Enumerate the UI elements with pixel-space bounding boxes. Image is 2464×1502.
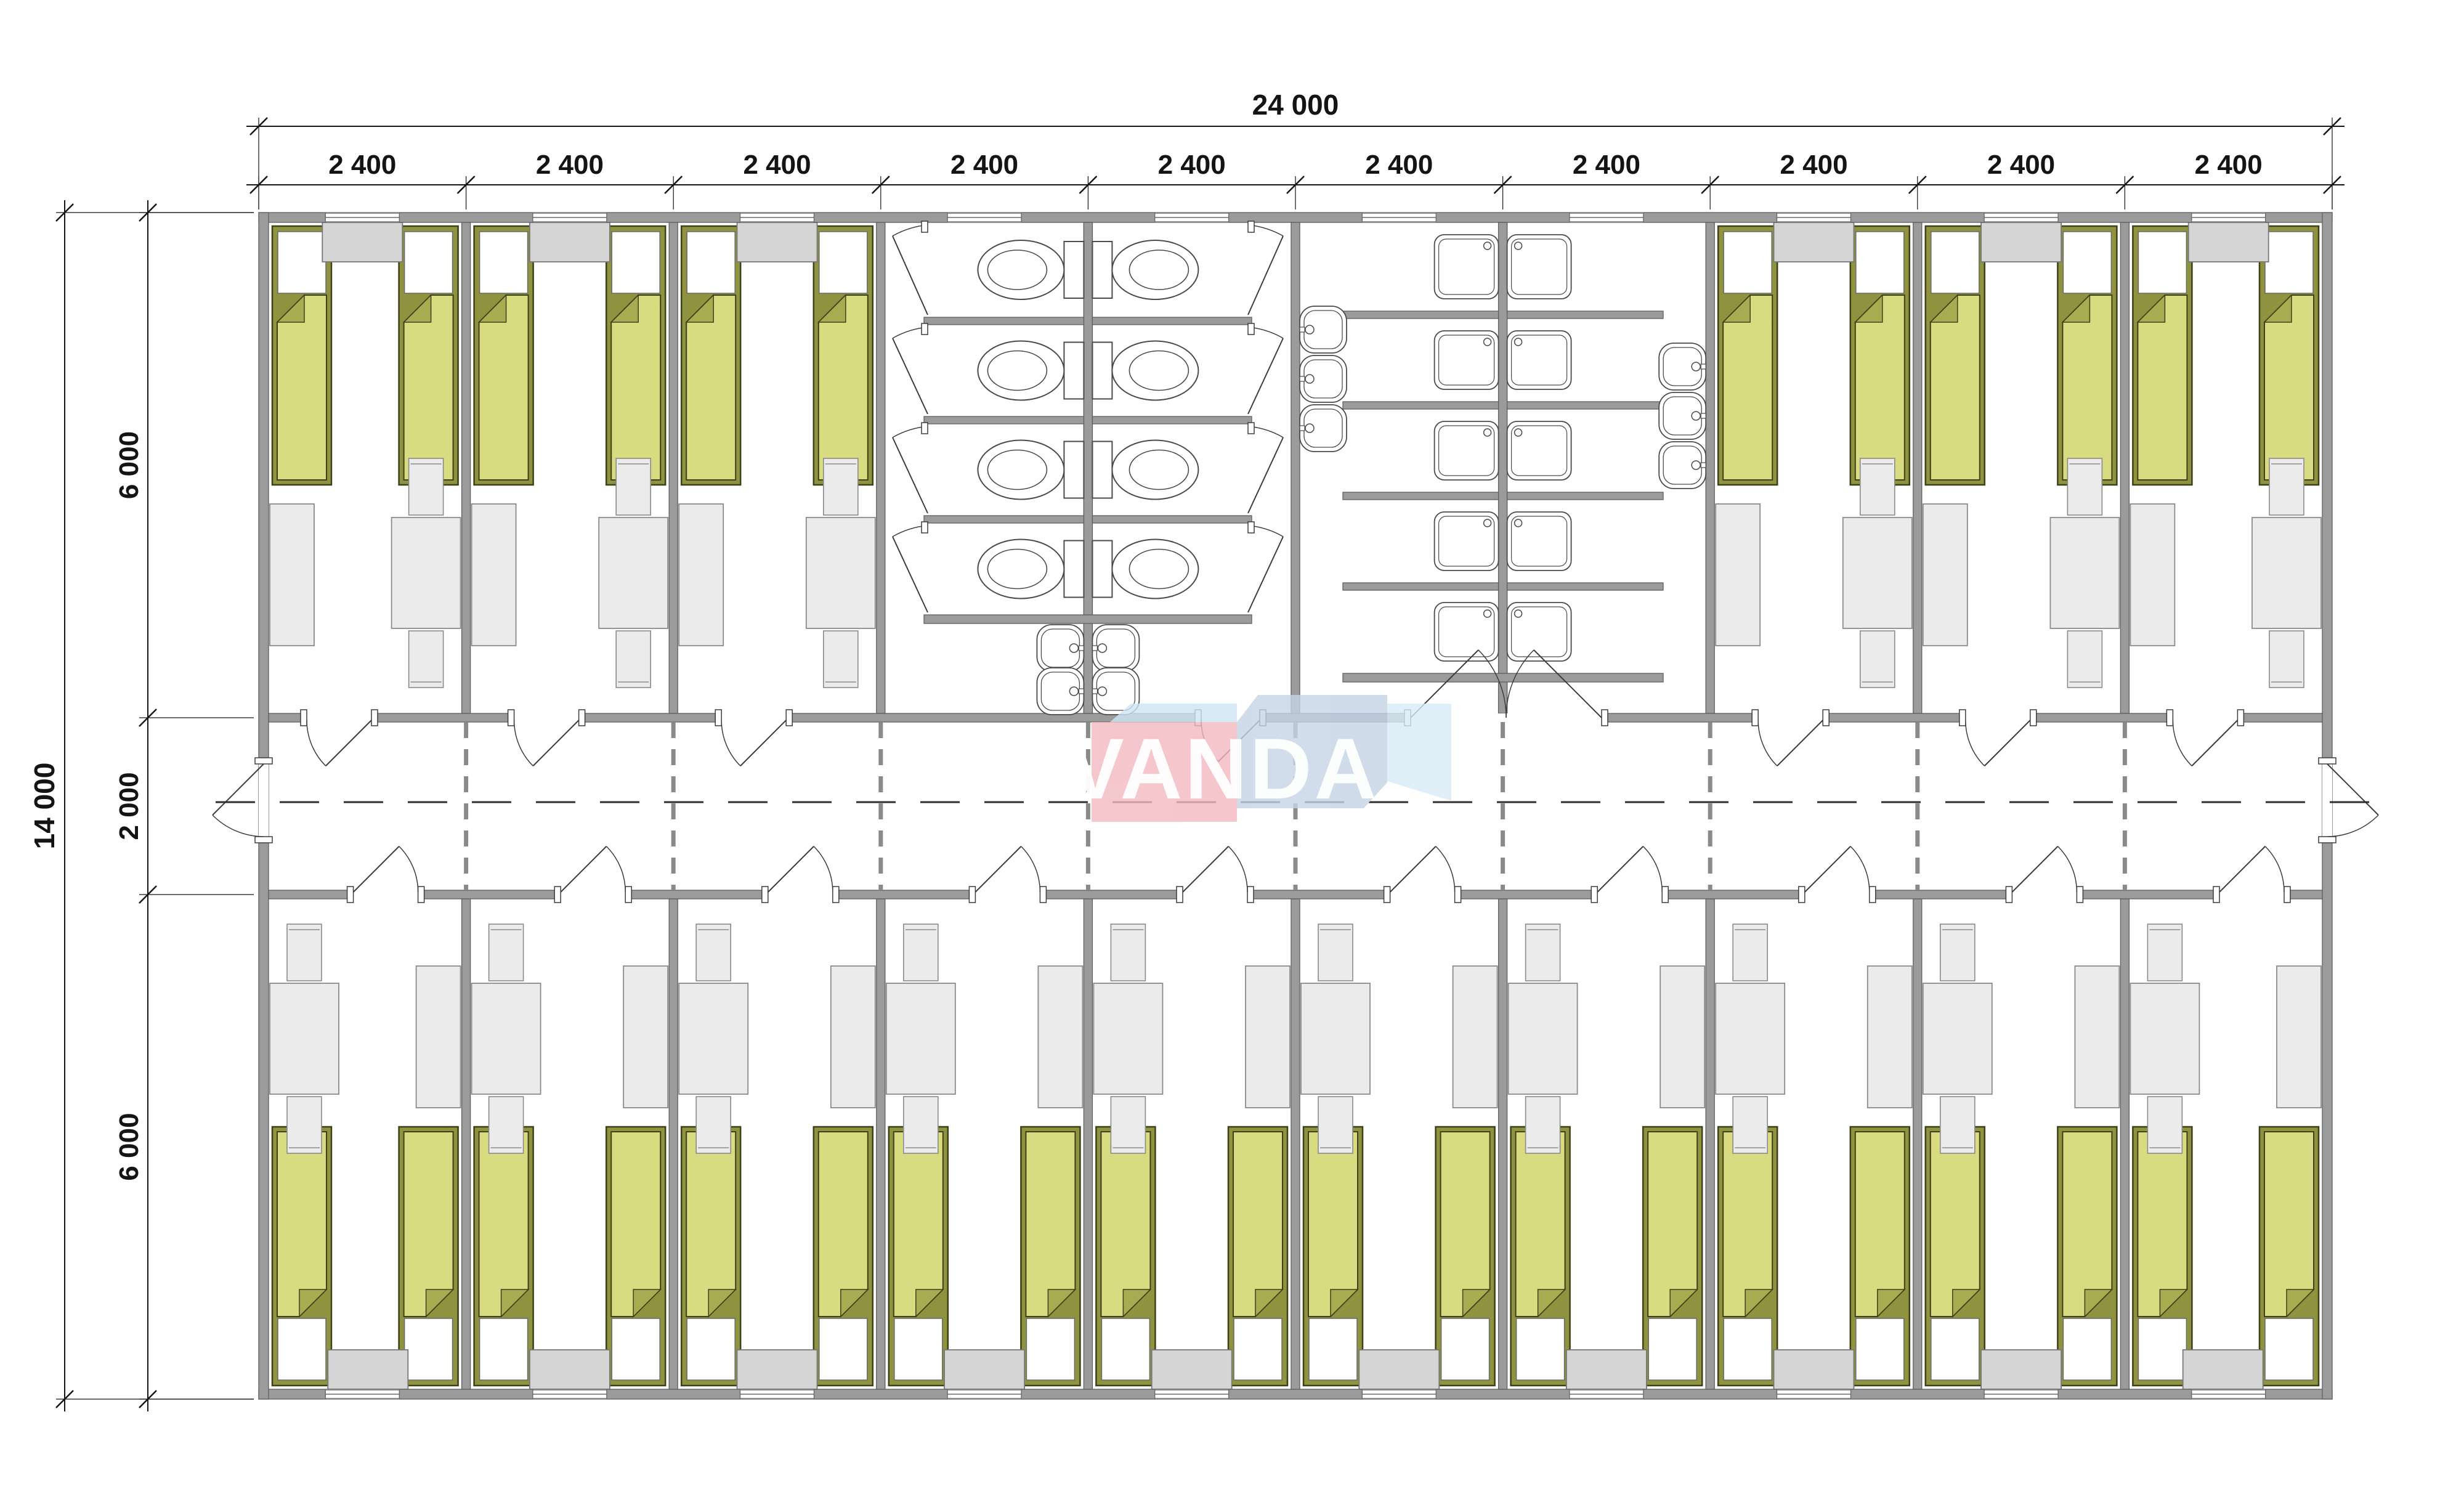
wardrobe	[2183, 1350, 2263, 1389]
bed	[2259, 1127, 2319, 1386]
chair	[616, 458, 650, 515]
bed	[2133, 226, 2192, 485]
bed	[1718, 226, 1777, 485]
shower-tray	[1507, 331, 1571, 389]
wardrobe	[1152, 1350, 1232, 1389]
bed	[2133, 1127, 2192, 1386]
dimension-label-module-1: 2 400	[328, 150, 396, 180]
chair	[409, 631, 444, 688]
dining-table	[1843, 518, 1912, 628]
wardrobe	[1774, 1350, 1854, 1389]
desk	[2075, 966, 2119, 1108]
shower-tray	[1507, 603, 1571, 661]
bed	[272, 1127, 331, 1386]
toilet	[978, 240, 1084, 299]
wardrobe	[1981, 1350, 2061, 1389]
floor-plan-svg: 24 0002 4002 4002 4002 4002 4002 4002 40…	[0, 0, 2464, 1502]
chair	[2147, 1097, 2182, 1153]
bed	[399, 1127, 458, 1386]
window	[533, 1389, 607, 1399]
dining-table	[806, 518, 875, 628]
window	[947, 213, 1021, 222]
shower-tray	[1435, 512, 1499, 570]
chair	[2147, 924, 2182, 981]
chair	[2067, 458, 2102, 515]
window	[1777, 1389, 1851, 1399]
chair	[1318, 1097, 1353, 1153]
washbasin	[1659, 392, 1706, 439]
bed	[1303, 1127, 1363, 1386]
chair	[1860, 631, 1895, 688]
wardrobe	[530, 222, 610, 262]
wardrobe	[322, 222, 402, 262]
window	[2192, 213, 2266, 222]
wardrobe	[328, 1350, 408, 1389]
wardrobe	[944, 1350, 1024, 1389]
shower-tray	[1507, 235, 1571, 299]
bed	[1718, 1127, 1777, 1386]
desk	[472, 504, 516, 646]
window	[325, 1389, 399, 1399]
shower-tray	[1507, 421, 1571, 480]
window	[533, 213, 607, 222]
dining-table	[2050, 518, 2119, 628]
chair	[904, 924, 938, 981]
bed	[2057, 1127, 2117, 1386]
chair	[2269, 631, 2304, 688]
bed	[1643, 1127, 1702, 1386]
wardrobe	[1774, 222, 1854, 262]
window	[2192, 1389, 2266, 1399]
desk	[2130, 504, 2174, 646]
desk	[1038, 966, 1082, 1108]
window	[1155, 213, 1229, 222]
wardrobe	[737, 222, 817, 262]
chair	[2269, 458, 2304, 515]
desk	[623, 966, 668, 1108]
desk	[1716, 504, 1760, 646]
chair	[1940, 924, 1975, 981]
chair	[1860, 458, 1895, 515]
window	[325, 213, 399, 222]
window	[1984, 213, 2058, 222]
dining-table	[392, 518, 461, 628]
wardrobe	[737, 1350, 817, 1389]
chair	[696, 1097, 731, 1153]
bed	[1926, 1127, 1985, 1386]
logo-text: VANDA	[1066, 720, 1379, 817]
bed	[1436, 1127, 1495, 1386]
dimension-label-segment-3: 6 000	[114, 1113, 144, 1180]
dimension-label-module-2: 2 400	[536, 150, 604, 180]
bed	[272, 226, 331, 485]
bed	[814, 1127, 873, 1386]
chair	[904, 1097, 938, 1153]
dining-table	[1923, 983, 1992, 1094]
shower-tray	[1435, 331, 1499, 389]
bed	[1096, 1127, 1155, 1386]
dimension-label-segment-2: 2 000	[114, 772, 144, 840]
bed	[2057, 226, 2117, 485]
dimension-label-module-9: 2 400	[1987, 150, 2055, 180]
washbasin	[1659, 442, 1706, 489]
desk	[1923, 504, 1968, 646]
bed	[474, 1127, 533, 1386]
bed	[2259, 226, 2319, 485]
dining-table	[2252, 518, 2321, 628]
chair	[824, 631, 858, 688]
chair	[287, 924, 322, 981]
desk	[416, 966, 461, 1108]
entrance-door-left	[213, 758, 272, 843]
chair	[1940, 1097, 1975, 1153]
shower-tray	[1435, 603, 1499, 661]
chair	[409, 458, 444, 515]
window	[1155, 1389, 1229, 1399]
desk	[2277, 966, 2321, 1108]
chair	[1733, 1097, 1767, 1153]
chair	[824, 458, 858, 515]
shower-tray	[1435, 421, 1499, 480]
bed	[1228, 1127, 1287, 1386]
window	[947, 1389, 1021, 1399]
washbasin	[1300, 306, 1347, 353]
toilet	[978, 540, 1084, 599]
bed	[1850, 1127, 1910, 1386]
wardrobe	[1566, 1350, 1647, 1389]
dimension-label-module-10: 2 400	[2195, 150, 2263, 180]
toilet	[1092, 341, 1198, 400]
chair	[489, 924, 524, 981]
wardrobe	[1359, 1350, 1439, 1389]
dimension-label-module-6: 2 400	[1365, 150, 1433, 180]
dimension-label-module-4: 2 400	[950, 150, 1018, 180]
bed	[681, 1127, 740, 1386]
bed	[1511, 1127, 1570, 1386]
desk	[1246, 966, 1290, 1108]
washbasin	[1037, 625, 1084, 672]
bed	[889, 1127, 948, 1386]
desk	[679, 504, 723, 646]
chair	[696, 924, 731, 981]
dimension-label-module-3: 2 400	[743, 150, 811, 180]
bed	[1926, 226, 1985, 485]
washbasin	[1300, 355, 1347, 402]
chair	[489, 1097, 524, 1153]
window	[1362, 1389, 1436, 1399]
dimension-label-module-7: 2 400	[1573, 150, 1640, 180]
bed	[399, 226, 458, 485]
washbasin	[1092, 625, 1139, 672]
dining-table	[472, 983, 541, 1094]
dining-table	[679, 983, 748, 1094]
dining-table	[1301, 983, 1370, 1094]
washbasin	[1037, 668, 1084, 715]
page: { "logo": { "text": "VANDA", "colors": {…	[0, 0, 2464, 1502]
dining-table	[2130, 983, 2199, 1094]
wardrobe	[530, 1350, 610, 1389]
toilet	[978, 440, 1084, 500]
floor-plan: 24 0002 4002 4002 4002 4002 4002 4002 40…	[0, 0, 2464, 1502]
bed	[606, 226, 665, 485]
dining-table	[1716, 983, 1785, 1094]
toilet	[1092, 540, 1198, 599]
desk	[831, 966, 875, 1108]
bed	[681, 226, 740, 485]
dimension-label-total-width: 24 000	[1252, 89, 1339, 121]
bed	[814, 226, 873, 485]
dining-table	[1509, 983, 1578, 1094]
window	[740, 213, 814, 222]
bed	[1021, 1127, 1080, 1386]
chair	[1526, 1097, 1560, 1153]
desk	[1868, 966, 1912, 1108]
dimension-label-module-8: 2 400	[1780, 150, 1847, 180]
window	[1570, 1389, 1643, 1399]
dimension-label-module-5: 2 400	[1158, 150, 1226, 180]
toilet	[978, 341, 1084, 400]
window	[1777, 213, 1851, 222]
washbasin	[1659, 343, 1706, 390]
dimension-label-segment-1: 6 000	[114, 431, 144, 499]
desk	[1660, 966, 1704, 1108]
dining-table	[270, 983, 339, 1094]
wardrobe	[2189, 222, 2269, 262]
dimension-label-total-height: 14 000	[28, 763, 60, 850]
shower-tray	[1507, 512, 1571, 570]
chair	[2067, 631, 2102, 688]
washbasin	[1300, 405, 1347, 452]
shower-tray	[1435, 235, 1499, 299]
toilet	[1092, 440, 1198, 500]
window	[740, 1389, 814, 1399]
dining-table	[1093, 983, 1162, 1094]
bed	[606, 1127, 665, 1386]
window	[1570, 213, 1643, 222]
chair	[1111, 924, 1145, 981]
window	[1984, 1389, 2058, 1399]
dining-table	[886, 983, 955, 1094]
wardrobe	[1981, 222, 2061, 262]
toilet	[1092, 240, 1198, 299]
chair	[1318, 924, 1353, 981]
entrance-door-right	[2319, 758, 2378, 843]
bed	[1850, 226, 1910, 485]
dining-table	[599, 518, 668, 628]
chair	[287, 1097, 322, 1153]
desk	[1453, 966, 1497, 1108]
desk	[270, 504, 314, 646]
chair	[616, 631, 650, 688]
window	[1362, 213, 1436, 222]
chair	[1733, 924, 1767, 981]
chair	[1111, 1097, 1145, 1153]
chair	[1526, 924, 1560, 981]
bed	[474, 226, 533, 485]
